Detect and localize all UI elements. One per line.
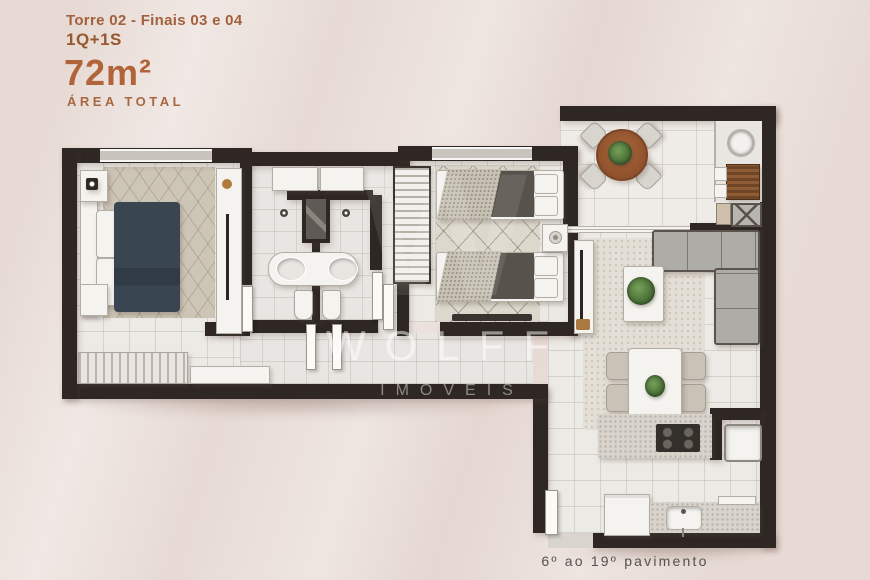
master-wardrobe-tv-panel bbox=[216, 168, 242, 334]
dining-chair bbox=[680, 352, 706, 380]
door-leaf bbox=[242, 286, 253, 332]
floor-range-caption: 6º ao 19º pavimento bbox=[505, 553, 745, 569]
barbecue-grill bbox=[726, 164, 760, 200]
nightstand-lamp bbox=[549, 231, 562, 244]
toilet bbox=[322, 290, 341, 320]
shaft-duct bbox=[306, 199, 326, 239]
wall-segment bbox=[287, 190, 373, 200]
terrace-round-sink bbox=[727, 129, 755, 157]
shower-head bbox=[342, 209, 350, 217]
master-window bbox=[100, 149, 212, 162]
bed-pillow bbox=[534, 174, 558, 194]
toilet bbox=[294, 290, 313, 320]
dining-chair bbox=[680, 384, 706, 412]
sink-faucet bbox=[681, 509, 686, 514]
sofa-right-section bbox=[714, 268, 760, 345]
door-leaf bbox=[306, 324, 316, 370]
bath-sink bbox=[328, 257, 358, 281]
shaft-x-box bbox=[731, 203, 762, 227]
coffee-table-plant bbox=[627, 277, 655, 305]
entry-door-leaf bbox=[545, 490, 558, 535]
counter-shelf bbox=[718, 496, 756, 505]
watermark-brand-subtitle: IMÓVEIS bbox=[347, 382, 557, 400]
cooktop bbox=[656, 424, 700, 452]
bath-sink bbox=[276, 257, 306, 281]
shower-head bbox=[280, 209, 288, 217]
master-bed bbox=[114, 202, 180, 312]
wall-segment bbox=[760, 106, 776, 548]
watermark-monogram-icon: W bbox=[362, 148, 527, 323]
unit-area-value: 72m² bbox=[64, 52, 152, 94]
unit-area-label: ÁREA TOTAL bbox=[67, 94, 184, 109]
unit-type: 1Q+1S bbox=[66, 30, 122, 50]
terrace-table-plant bbox=[608, 141, 632, 165]
grill-shelf bbox=[714, 167, 727, 181]
master-dresser bbox=[78, 352, 188, 384]
bed-pillow bbox=[534, 196, 558, 216]
watermark-brand-name: WOLFF bbox=[322, 322, 572, 370]
wall-segment bbox=[62, 148, 77, 399]
duct-box bbox=[716, 203, 731, 225]
decor-box bbox=[576, 319, 590, 330]
grill-shelf bbox=[714, 184, 727, 198]
nightstand-lamp bbox=[86, 178, 98, 190]
hall-cabinet bbox=[320, 167, 364, 191]
hall-cabinet bbox=[272, 167, 318, 191]
sofa-chaise-section bbox=[652, 230, 760, 272]
laundry-tub bbox=[724, 424, 762, 462]
floor-plan-marketing-image: W WOLFF IMÓVEIS Torre 02 - Finais 03 e 0… bbox=[0, 0, 870, 580]
entry-threshold bbox=[548, 533, 593, 548]
sink-drain-line bbox=[682, 528, 684, 537]
low-cabinet bbox=[190, 366, 270, 384]
nightstand bbox=[80, 284, 108, 316]
tv-screen bbox=[226, 214, 229, 300]
bed-pillow bbox=[534, 278, 558, 298]
bed-pillow bbox=[534, 256, 558, 276]
dining-table-plant bbox=[645, 375, 665, 397]
tv-screen bbox=[580, 250, 583, 320]
unit-title: Torre 02 - Finais 03 e 04 bbox=[66, 12, 242, 29]
decor-bowl bbox=[222, 179, 232, 189]
refrigerator bbox=[604, 494, 650, 536]
